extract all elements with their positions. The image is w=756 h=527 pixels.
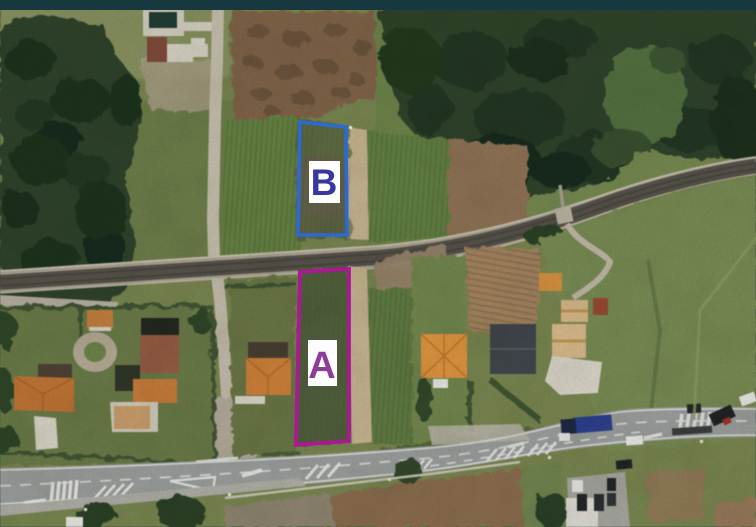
svg-text:A: A (308, 345, 335, 387)
svg-text:B: B (311, 162, 338, 203)
